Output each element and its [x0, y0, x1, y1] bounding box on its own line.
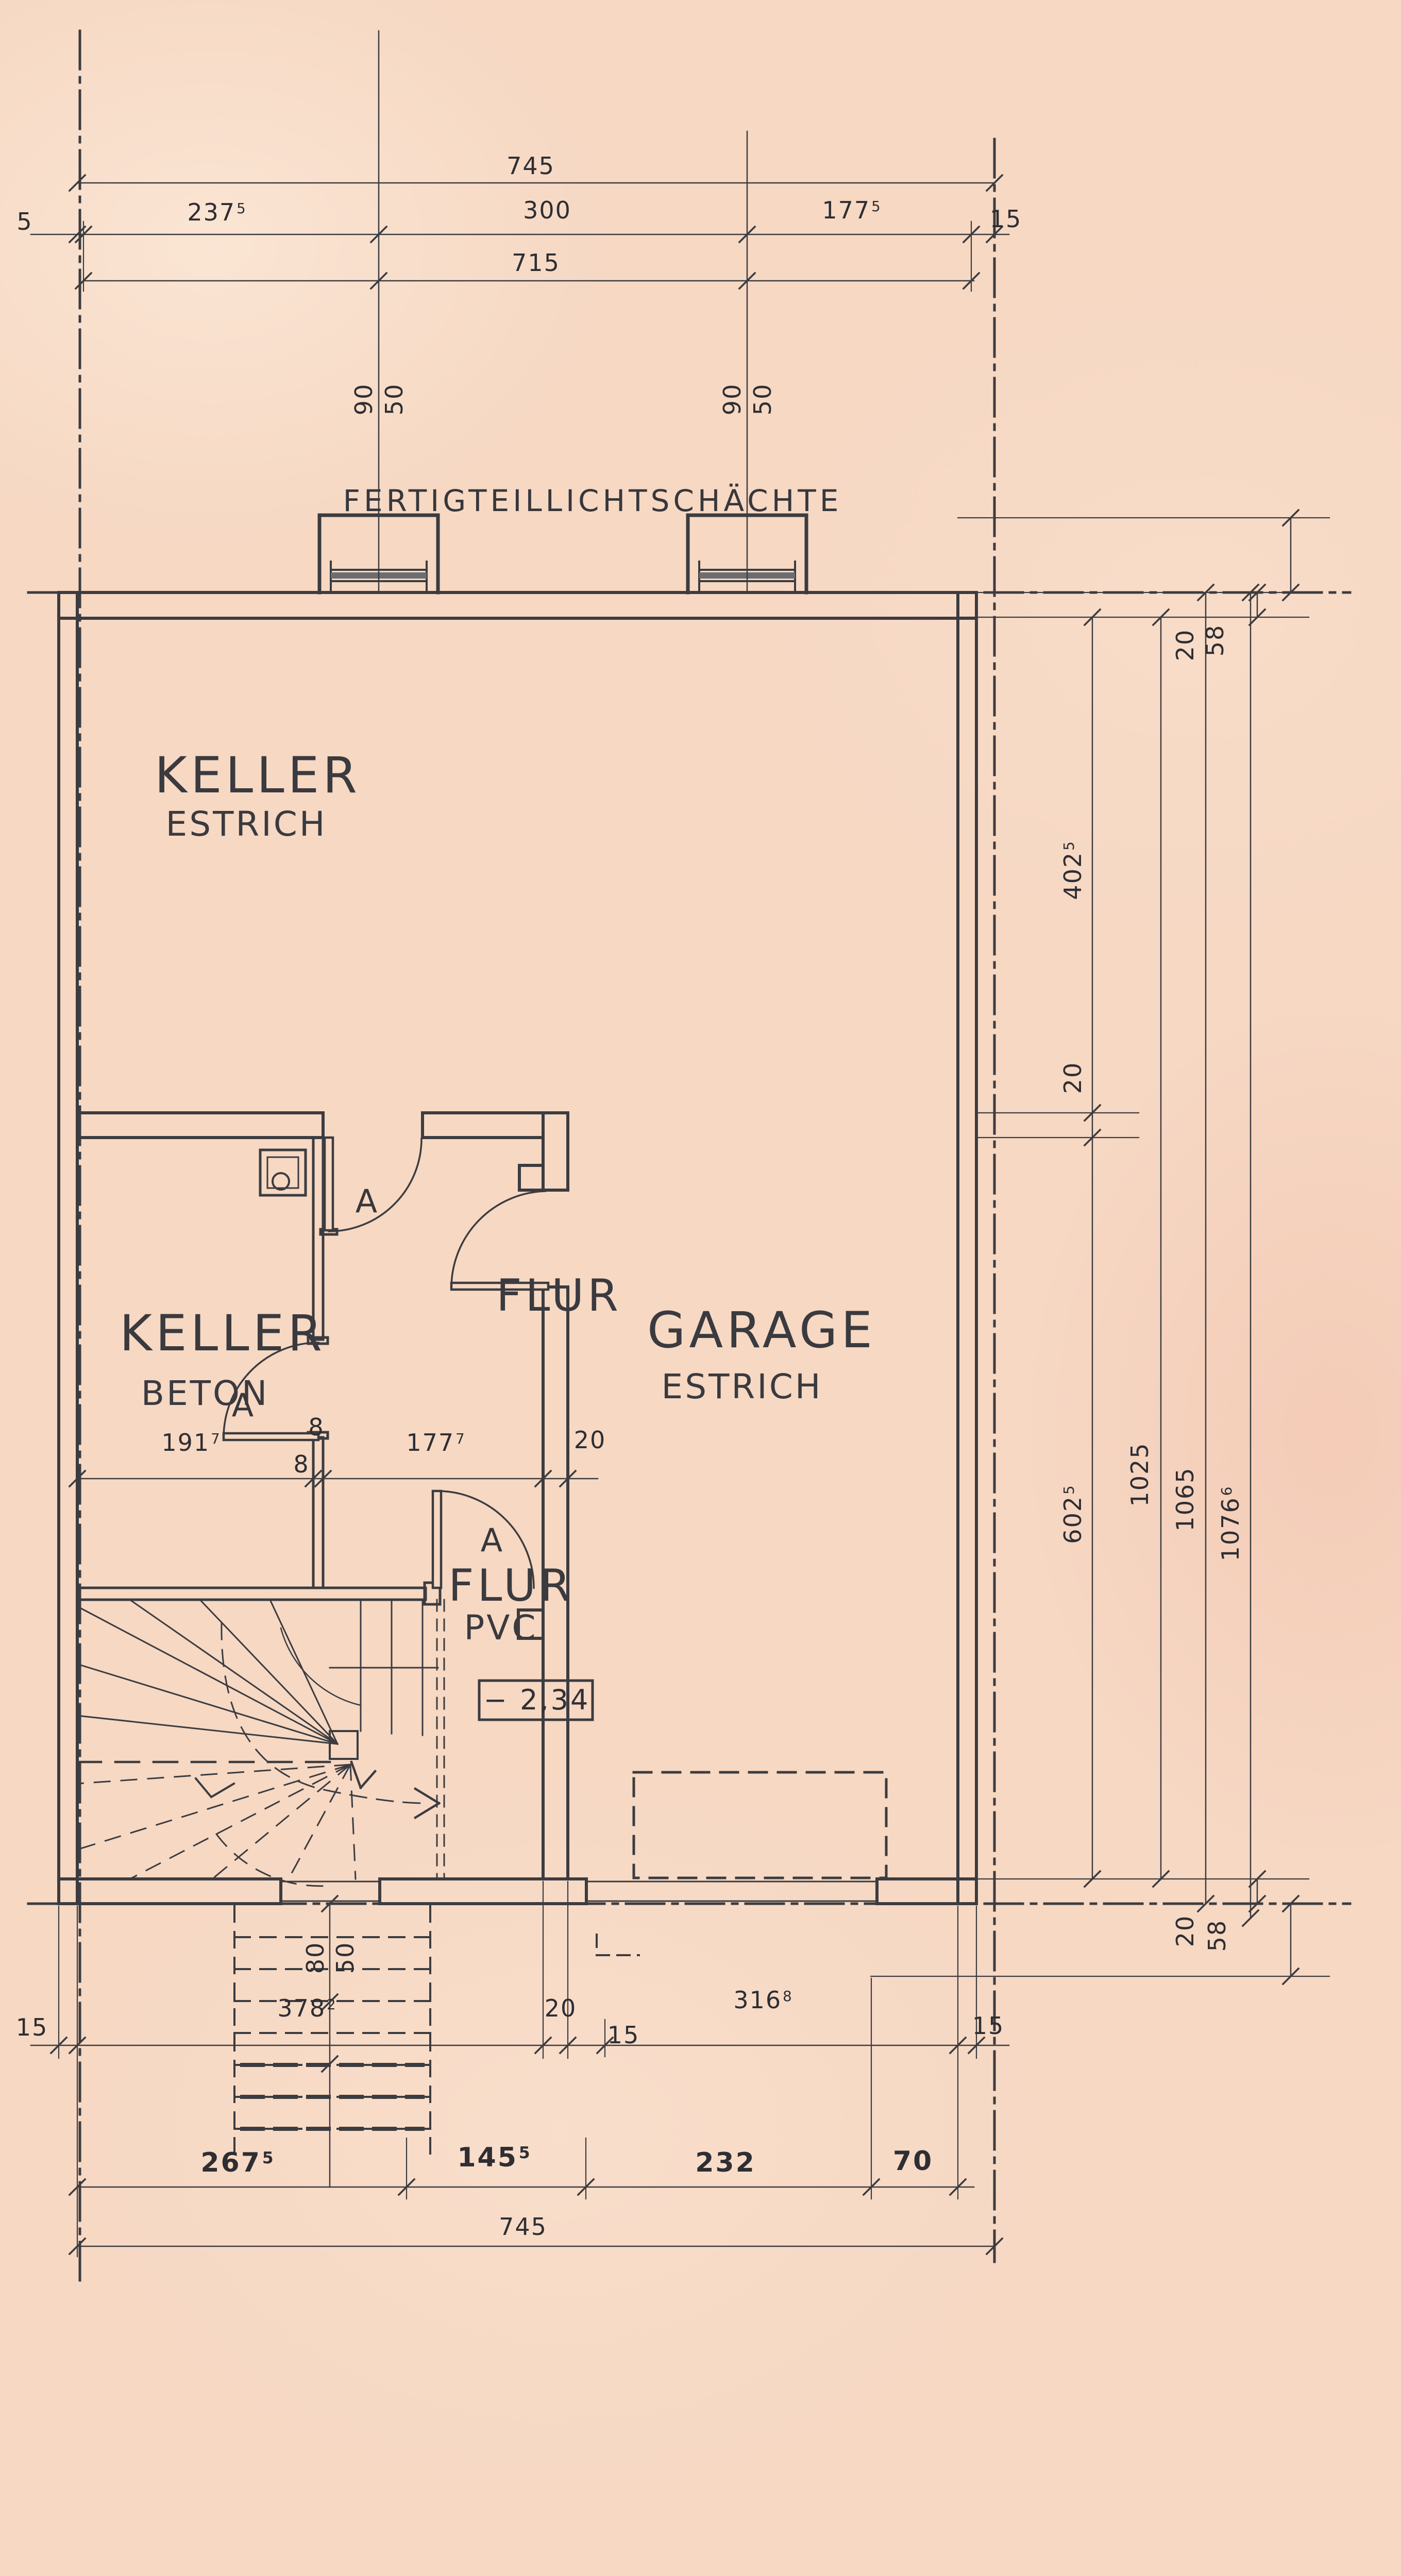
room-keller-top-material: ESTRICH [166, 807, 327, 841]
dim-right-partition: 20 [1061, 1062, 1085, 1094]
extension-lines [59, 222, 1329, 2257]
wall-bottom-left [59, 1879, 281, 1904]
dim-bot2-2675: 2675 [200, 2149, 273, 2176]
wall-right [958, 592, 976, 1904]
room-keller-left: KELLER [120, 1309, 326, 1358]
dim-shaft1-depth: 50 [382, 383, 406, 416]
wall-left [59, 592, 77, 1904]
dim-top-overall: 745 [507, 154, 555, 178]
dim-right-overall: 10766 [1219, 1487, 1242, 1562]
thin-walls [77, 1138, 440, 1604]
stair-edge-dashed [437, 1600, 444, 1879]
garage-door-jamb-pier [519, 1165, 543, 1190]
floor-plan-drawing [0, 0, 1401, 2576]
dim-right-shaft-top: 58 [1203, 624, 1227, 657]
dim-extstair-depth: 50 [333, 1942, 357, 1974]
stair-treads-straight [330, 1600, 438, 1735]
dim-shaft1-width: 90 [352, 383, 376, 416]
dim-extstair-width: 80 [303, 1942, 327, 1974]
wall-bottom-middle [380, 1879, 586, 1904]
dim-top-left-offset: 5 [16, 210, 32, 233]
dim-bot1-15l: 15 [16, 2015, 48, 2039]
stair-treads-upper-fan [77, 1600, 337, 1744]
stair [77, 1600, 444, 1886]
room-flur-pvc: FLUR [448, 1564, 574, 1608]
dim-int-20: 20 [574, 1428, 606, 1452]
dim-top-300: 300 [523, 198, 571, 222]
dim-top-2375: 2375 [187, 200, 245, 224]
wall-top [59, 592, 976, 618]
light-shaft-annotation: FERTIGTEILLICHTSCHÄCHTE [343, 486, 842, 516]
dim-right-garage-depth: 6025 [1061, 1485, 1085, 1544]
room-flur: FLUR [496, 1274, 622, 1318]
dim-top-right-offset: 15 [990, 207, 1022, 231]
dim-right-inner-total: 1025 [1128, 1442, 1152, 1506]
stair-walk-arrow [351, 1762, 439, 1818]
dim-right-wall-bottom: 20 [1173, 1915, 1197, 1947]
dim-bot1-20: 20 [545, 1996, 577, 2020]
room-garage-material: ESTRICH [662, 1370, 823, 1404]
dim-shaft2-depth: 50 [751, 383, 774, 416]
dim-bot1-3168: 3168 [733, 1988, 791, 2012]
dim-int-1777: 1777 [406, 1431, 464, 1454]
threshold-garage-door [586, 1882, 877, 1901]
room-flur-pvc-material: PVC [464, 1611, 537, 1645]
kellerbeton-east-wall-lower [313, 1437, 323, 1588]
level-marker: − 2,34 [484, 1686, 590, 1714]
door-label-a1: A [356, 1185, 378, 1217]
light-shafts [319, 515, 806, 592]
dim-int-1917: 1917 [161, 1431, 220, 1454]
garage-wall-upper [543, 1113, 568, 1190]
stair-handrail-arc [281, 1628, 361, 1705]
door-leaf-kellerbeton [224, 1433, 318, 1440]
dim-bot1-15r: 15 [972, 2014, 1005, 2038]
door-leaf-keller-flur [325, 1138, 333, 1230]
blueprint-page: { "sheet": { "title": "KELLERGESCHOSS" }… [0, 0, 1401, 2576]
room-keller-top: KELLER [155, 751, 361, 800]
dim-bot1-3782: 3782 [277, 1996, 335, 2020]
dim-int-8b: 8 [293, 1452, 309, 1476]
garage-door-swing-area [634, 1772, 886, 1878]
dim-bot2-1455: 1455 [457, 2144, 530, 2171]
partition-middle-left [77, 1113, 323, 1138]
dim-right-wall-top: 20 [1173, 629, 1197, 662]
dim-bot2-70: 70 [893, 2148, 933, 2175]
door-label-a3: A [481, 1524, 503, 1556]
dim-bot2-232: 232 [695, 2149, 756, 2176]
dim-top-1775: 1775 [822, 198, 880, 222]
dim-right-apron: 58 [1205, 1920, 1229, 1952]
stair-break-mark [196, 1778, 234, 1797]
dim-right-keller-depth: 4025 [1061, 841, 1085, 900]
dim-shaft2-width: 90 [720, 383, 744, 416]
room-garage: GARAGE [647, 1306, 876, 1355]
drain-fixture [260, 1150, 306, 1195]
dim-int-8a: 8 [308, 1415, 324, 1439]
thresholds [281, 1882, 877, 1901]
dim-garage-jamb-15: 15 [607, 2023, 640, 2047]
door-label-a2: A [232, 1389, 255, 1421]
door-arcs [224, 1139, 545, 1588]
partition-middle-right [423, 1113, 543, 1138]
dim-bottom-overall: 745 [499, 2215, 547, 2239]
garage-apron-mark [597, 1935, 639, 1955]
wall-bottom-garage-pier [877, 1879, 976, 1904]
reference-axes [28, 31, 1350, 2282]
stair-compartment-wall [77, 1588, 426, 1600]
door-leaf-flurpvc [433, 1491, 441, 1588]
stair-treads-lower-fan [77, 1765, 356, 1886]
dim-right-outer-total: 1065 [1173, 1467, 1197, 1531]
dim-top-inner: 715 [512, 251, 560, 275]
